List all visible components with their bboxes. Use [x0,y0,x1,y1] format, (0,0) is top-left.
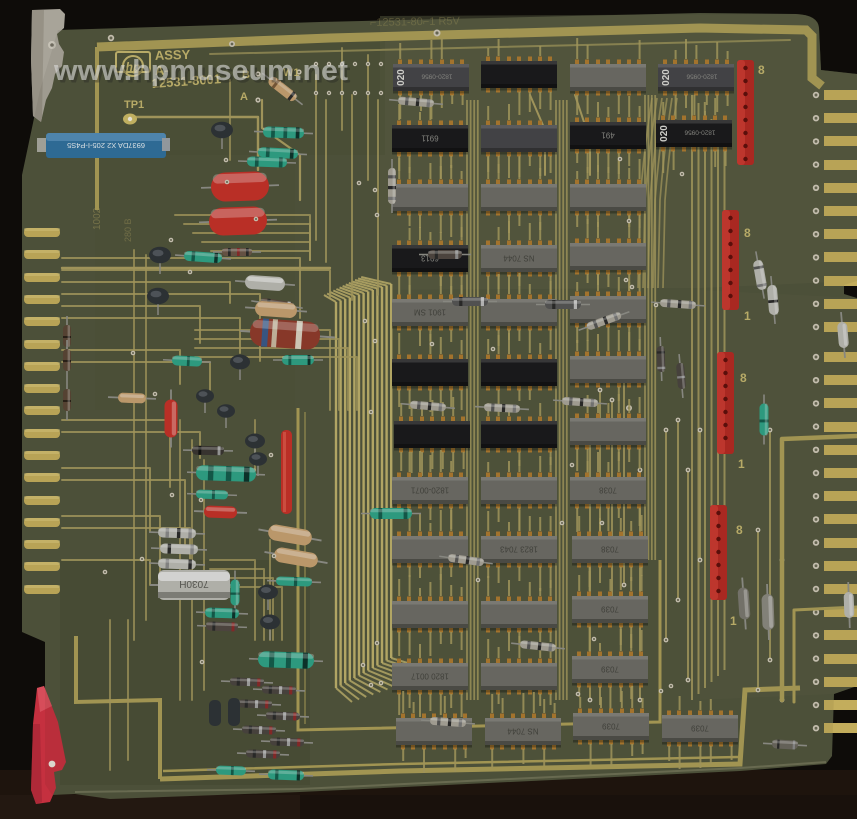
svg-text:www.hpmuseum.net: www.hpmuseum.net [53,55,348,87]
